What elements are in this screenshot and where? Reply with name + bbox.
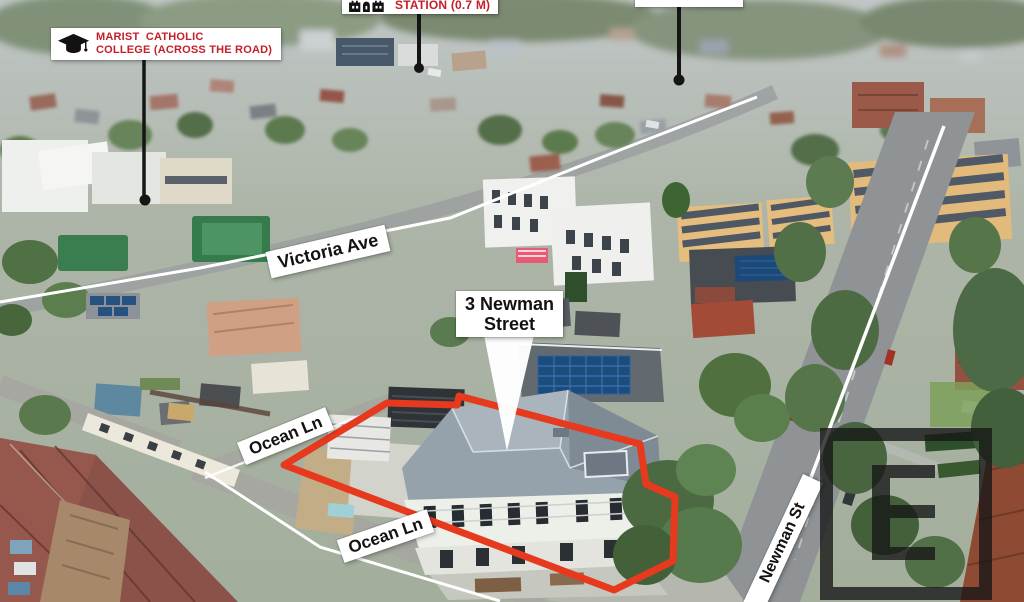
property-callout-wedge [484, 335, 534, 451]
property-address-callout: 3 Newman Street [456, 291, 563, 337]
logo-letter-e-top-arm [872, 465, 935, 478]
aerial-photo: MARIST CATHOLIC COLLEGE (ACROSS THE ROAD… [0, 0, 1024, 602]
property-boundary-outline [284, 396, 675, 590]
graduation-cap-icon [57, 33, 90, 56]
logo-letter-e-bottom-arm [872, 547, 935, 560]
college-label-line1: MARIST CATHOLIC [96, 31, 272, 44]
train-station-icon [349, 0, 389, 12]
agency-logo-watermark [820, 428, 992, 600]
right-callout-pointer-dot [674, 75, 685, 86]
cutoff-callout-box [635, 0, 743, 7]
victoria-ave-street-line [0, 97, 757, 302]
college-callout: MARIST CATHOLIC COLLEGE (ACROSS THE ROAD… [51, 28, 281, 60]
property-address-line2: Street [458, 314, 561, 334]
property-address-line1: 3 Newman [458, 294, 561, 314]
logo-letter-e-mid-arm [872, 505, 935, 518]
station-label-text: STATION (0.7 M) [395, 0, 490, 12]
station-pointer-dot [414, 63, 424, 73]
station-callout: STATION (0.7 M) [342, 0, 498, 14]
college-label-line2: COLLEGE (ACROSS THE ROAD) [96, 44, 272, 57]
college-pointer-dot [140, 195, 151, 206]
